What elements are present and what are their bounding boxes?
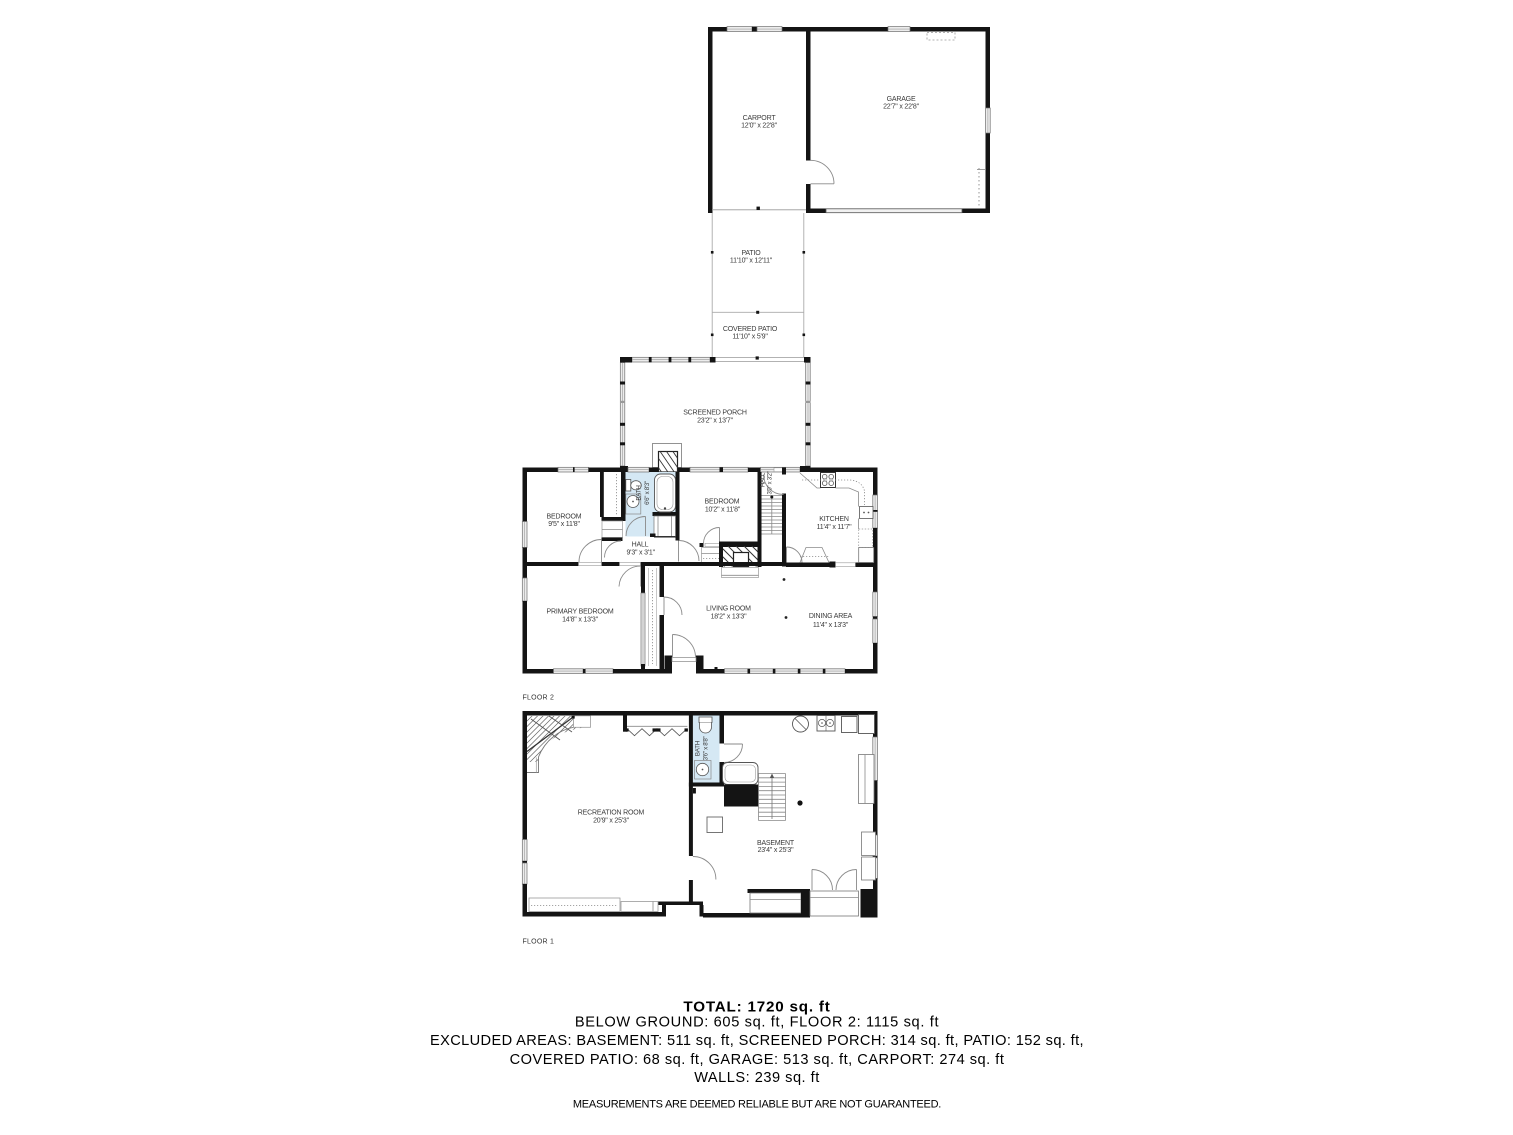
svg-text:23'4" x 25'3": 23'4" x 25'3" xyxy=(758,847,795,854)
svg-text:11'4" x 13'3": 11'4" x 13'3" xyxy=(813,622,849,629)
svg-text:HALL: HALL xyxy=(632,542,649,549)
svg-text:EXCLUDED AREAS: BASEMENT: 511: EXCLUDED AREAS: BASEMENT: 511 sq. ft, SC… xyxy=(430,1033,1084,1049)
svg-text:WALLS: 239 sq. ft: WALLS: 239 sq. ft xyxy=(694,1070,820,1086)
svg-text:BATH: BATH xyxy=(695,741,702,756)
svg-text:COVERED PATIO: 68 sq. ft, GARA: COVERED PATIO: 68 sq. ft, GARAGE: 513 sq… xyxy=(510,1052,1005,1068)
svg-text:FLOOR 1: FLOOR 1 xyxy=(523,939,555,946)
svg-text:11'4" x 11'7": 11'4" x 11'7" xyxy=(817,524,852,531)
svg-text:PRIMARY BEDROOM: PRIMARY BEDROOM xyxy=(546,609,613,616)
svg-text:GARAGE: GARAGE xyxy=(887,96,916,103)
svg-text:9'3" x 3'1": 9'3" x 3'1" xyxy=(626,549,655,556)
svg-text:10'2" x 11'8": 10'2" x 11'8" xyxy=(705,506,741,513)
svg-text:3'6" x 8'8": 3'6" x 8'8" xyxy=(703,737,710,761)
svg-text:11'10" x 5'9": 11'10" x 5'9" xyxy=(732,334,768,341)
svg-text:COVERED PATIO: COVERED PATIO xyxy=(723,326,778,333)
svg-text:11'10" x 12'11": 11'10" x 12'11" xyxy=(730,258,773,265)
svg-text:BELOW GROUND: 605 sq. ft, FLOO: BELOW GROUND: 605 sq. ft, FLOOR 2: 1115 … xyxy=(575,1014,939,1030)
svg-text:20'9" x 25'3": 20'9" x 25'3" xyxy=(593,817,630,824)
svg-text:18'2" x 13'3": 18'2" x 13'3" xyxy=(711,614,748,621)
svg-text:BEDROOM: BEDROOM xyxy=(547,513,582,520)
svg-text:MEASUREMENTS ARE DEEMED RELIAB: MEASUREMENTS ARE DEEMED RELIABLE BUT ARE… xyxy=(573,1099,941,1111)
svg-text:DINING AREA: DINING AREA xyxy=(809,613,853,620)
svg-text:BATH: BATH xyxy=(636,485,643,500)
svg-text:TOTAL: 1720 sq. ft: TOTAL: 1720 sq. ft xyxy=(683,999,830,1016)
svg-text:23'2" x 13'7": 23'2" x 13'7" xyxy=(697,418,734,425)
svg-text:12'0" x 22'8": 12'0" x 22'8" xyxy=(741,123,778,130)
svg-text:FLOOR 2: FLOOR 2 xyxy=(523,695,555,702)
svg-text:14'8" x 13'3": 14'8" x 13'3" xyxy=(562,617,599,624)
svg-text:CARPORT: CARPORT xyxy=(743,115,777,122)
svg-text:BEDROOM: BEDROOM xyxy=(705,498,740,505)
svg-text:6'6" x 8'3": 6'6" x 8'3" xyxy=(644,481,651,505)
svg-text:9'5" x 11'8": 9'5" x 11'8" xyxy=(548,521,580,528)
svg-text:3'0" x 3'2": 3'0" x 3'2" xyxy=(768,471,774,494)
svg-text:PATIO: PATIO xyxy=(741,250,761,257)
svg-text:22'7" x 22'8": 22'7" x 22'8" xyxy=(883,104,920,111)
svg-text:KITCHEN: KITCHEN xyxy=(819,516,849,523)
svg-text:SCREENED PORCH: SCREENED PORCH xyxy=(683,410,747,417)
svg-text:HALL: HALL xyxy=(761,472,767,487)
svg-text:LIVING ROOM: LIVING ROOM xyxy=(706,606,751,613)
svg-text:RECREATION ROOM: RECREATION ROOM xyxy=(578,809,645,816)
